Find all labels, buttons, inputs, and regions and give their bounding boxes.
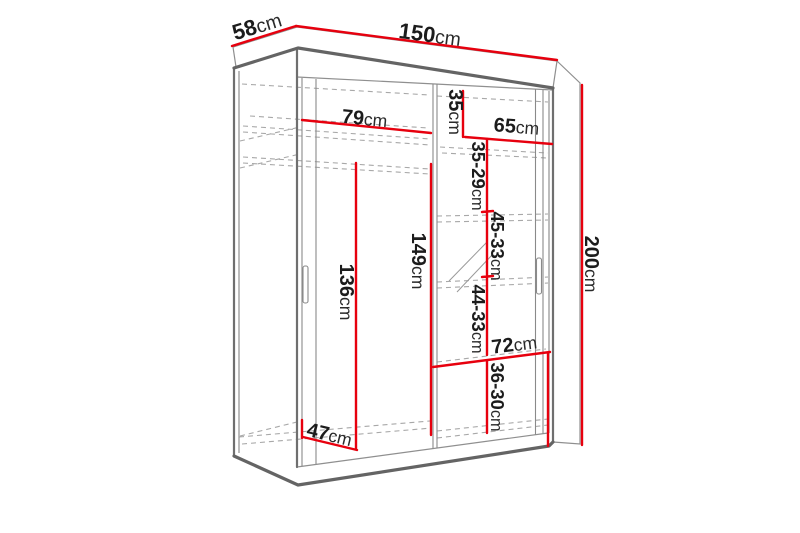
wardrobe-silhouette <box>233 27 580 486</box>
dim-right-section-width-label: 65cm <box>493 114 540 140</box>
diagram-canvas: 58cm 150cm 79cm 35cm 65cm 35-29cm 45-33c… <box>0 0 800 533</box>
dim-gap-35-29-label: 35-29cm <box>468 141 489 210</box>
right-door-handle <box>537 258 542 294</box>
dim-height-label: 200cm <box>580 236 602 293</box>
dim-hang-height-label: 136cm <box>335 264 357 321</box>
left-door-handle <box>303 266 308 303</box>
dim-interior-height-label: 149cm <box>407 233 429 290</box>
dim-left-section-width-label: 79cm <box>341 106 389 132</box>
dim-gap-36-30-label: 36-30cm <box>487 362 508 431</box>
dim-gap-45-33-label: 45-33cm <box>487 211 508 280</box>
dim-gap-44-33-label: 44-33cm <box>468 284 489 353</box>
dim-top-shelf-drop-label: 35cm <box>444 89 466 135</box>
wardrobe-dimension-diagram: 58cm 150cm 79cm 35cm 65cm 35-29cm 45-33c… <box>0 0 800 533</box>
